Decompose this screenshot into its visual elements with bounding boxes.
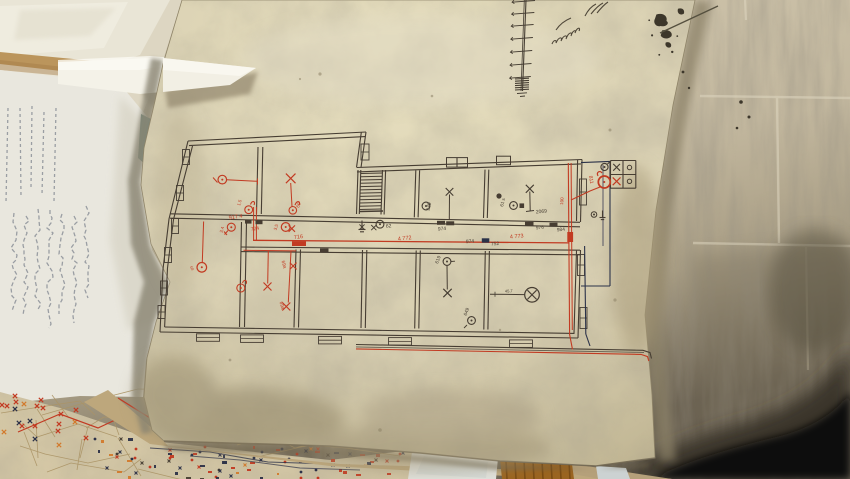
svg-text:45,7: 45,7: [505, 288, 514, 294]
svg-text:752: 752: [491, 241, 500, 248]
svg-text:976: 976: [536, 225, 545, 232]
svg-text:100: 100: [559, 197, 565, 205]
svg-text:974: 974: [438, 226, 447, 233]
svg-text:984: 984: [557, 227, 566, 234]
svg-text:974: 974: [466, 238, 475, 245]
svg-text:724: 724: [250, 226, 259, 233]
svg-text:716: 716: [294, 234, 304, 241]
svg-text:4 773: 4 773: [510, 233, 524, 240]
svg-text:62: 62: [386, 223, 392, 229]
svg-text:2069: 2069: [536, 209, 548, 216]
